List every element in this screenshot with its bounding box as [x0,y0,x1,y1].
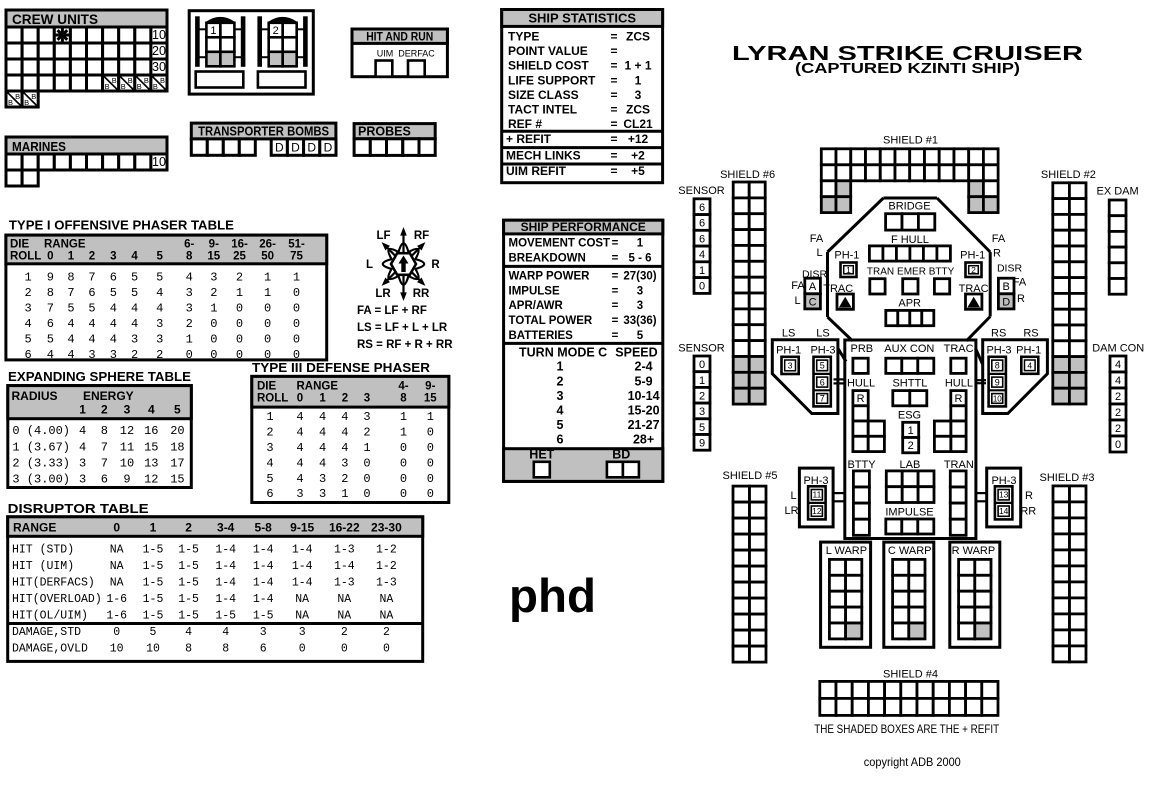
svg-text:NA: NA [379,593,393,606]
svg-text:18: 18 [170,440,184,454]
svg-text:2: 2 [341,472,348,486]
svg-text:1: 1 [319,392,326,404]
svg-text:FA: FA [1013,277,1027,289]
svg-text:1: 1 [637,238,644,250]
svg-text:3: 3 [635,88,642,102]
svg-text:27(30): 27(30) [623,271,656,283]
svg-text:copyright ADB 2000: copyright ADB 2000 [864,755,961,769]
svg-text:2: 2 [101,403,108,417]
svg-text:15: 15 [170,473,184,487]
svg-text:ESG: ESG [898,409,921,421]
svg-text:3: 3 [699,406,705,418]
svg-text:4: 4 [131,317,138,331]
svg-text:=: = [610,164,617,178]
svg-text:4: 4 [266,456,273,470]
svg-text:LAB: LAB [900,459,921,471]
svg-text:4: 4 [1115,359,1121,371]
svg-text:3: 3 [156,317,163,331]
svg-text:5: 5 [88,301,95,315]
svg-text:6: 6 [260,642,267,655]
svg-text:4: 4 [296,472,303,486]
svg-text:3: 3 [186,301,193,315]
svg-text:4: 4 [319,426,326,440]
svg-text:3: 3 [110,348,117,362]
svg-text:HULL: HULL [847,378,875,390]
svg-text:3: 3 [341,456,348,470]
svg-text:0: 0 [383,642,390,655]
svg-text:RANGE: RANGE [44,239,86,251]
svg-text:4: 4 [296,441,303,455]
svg-text:1: 1 [908,425,914,437]
svg-text:12: 12 [120,424,134,438]
svg-text:3: 3 [363,410,370,424]
svg-text:1: 1 [79,403,86,417]
svg-text:7: 7 [47,301,54,315]
svg-text:4: 4 [1115,375,1121,387]
svg-text:2: 2 [131,348,138,362]
svg-text:3: 3 [637,285,643,297]
svg-text:RANGE: RANGE [13,521,56,535]
svg-text:L WARP: L WARP [826,545,867,557]
svg-text:NA: NA [110,577,124,590]
svg-text:TURN MODE C: TURN MODE C [519,346,607,360]
svg-text:3: 3 [131,333,138,347]
svg-text:HULL: HULL [945,378,973,390]
svg-text:9-: 9- [425,380,435,392]
svg-text:HIT(OVERLOAD): HIT(OVERLOAD) [12,593,102,606]
svg-text:1-5: 1-5 [178,560,199,573]
svg-text:6: 6 [266,487,273,501]
svg-text:B: B [137,82,142,91]
svg-text:0: 0 [264,348,271,362]
svg-text:4: 4 [110,333,117,347]
svg-text:20: 20 [170,424,184,438]
svg-text:20: 20 [152,44,166,58]
svg-text:L: L [816,247,822,259]
svg-text:5: 5 [266,472,273,486]
svg-text:0: 0 [400,456,407,470]
svg-text:4: 4 [319,410,326,424]
svg-text:SHIELD #1: SHIELD #1 [883,135,938,147]
svg-text:10: 10 [152,155,166,169]
svg-text:7: 7 [820,393,825,403]
svg-text:2 (3.33): 2 (3.33) [12,456,70,470]
svg-text:7: 7 [101,456,108,470]
svg-text:(CAPTURED KZINTI SHIP): (CAPTURED KZINTI SHIP) [795,60,1020,77]
svg-text:25: 25 [233,251,246,263]
svg-text:1-4: 1-4 [215,560,236,573]
svg-text:0: 0 [236,317,243,331]
svg-text:D: D [275,140,284,154]
svg-text:ZCS: ZCS [626,103,650,117]
svg-text:4: 4 [110,317,117,331]
svg-text:3: 3 [296,487,303,501]
svg-text:1: 1 [846,265,851,275]
svg-text:TYPE I OFFENSIVE PHASER TABLE: TYPE I OFFENSIVE PHASER TABLE [9,219,234,233]
svg-text:PH-1: PH-1 [776,344,801,356]
svg-text:4: 4 [341,426,348,440]
svg-text:NA: NA [337,593,351,606]
svg-text:8: 8 [222,642,229,655]
svg-text:NA: NA [295,593,309,606]
svg-text:TYPE: TYPE [508,30,539,44]
svg-text:4: 4 [110,301,117,315]
svg-text:10: 10 [146,642,160,655]
svg-text:2: 2 [186,317,193,331]
svg-text:D: D [324,140,333,154]
svg-text:8: 8 [995,361,1000,371]
svg-text:RS: RS [991,327,1006,339]
svg-text:SHIP STATISTICS: SHIP STATISTICS [528,11,636,26]
svg-text:1-6: 1-6 [106,610,127,623]
svg-text:7: 7 [88,270,95,284]
svg-text:16: 16 [144,424,158,438]
svg-text:DISRUPTOR TABLE: DISRUPTOR TABLE [8,502,149,516]
svg-text:6: 6 [699,202,705,214]
svg-text:30: 30 [152,60,166,74]
svg-text:2: 2 [156,348,163,362]
svg-text:1-4: 1-4 [253,560,274,573]
svg-text:6: 6 [47,317,54,331]
svg-text:6: 6 [699,233,705,245]
svg-text:0: 0 [264,317,271,331]
svg-text:33(36): 33(36) [623,315,656,327]
svg-text:L: L [366,259,373,271]
svg-text:NA: NA [337,610,351,623]
svg-text:PH-1: PH-1 [960,250,985,262]
svg-text:8: 8 [67,270,74,284]
svg-text:3: 3 [79,473,86,487]
svg-text:51-: 51- [288,239,305,251]
svg-text:3: 3 [266,441,273,455]
svg-text:1-4: 1-4 [215,544,236,557]
svg-text:L: L [794,295,800,307]
svg-text:1-5: 1-5 [143,544,164,557]
svg-text:8: 8 [47,286,54,300]
svg-text:15: 15 [144,440,158,454]
svg-text:UIM REFIT: UIM REFIT [506,164,567,178]
svg-text:10: 10 [152,28,166,42]
svg-text:B: B [31,92,36,101]
svg-text:HIT (UIM): HIT (UIM) [12,560,74,573]
svg-text:0: 0 [236,333,243,347]
svg-text:9: 9 [995,377,1000,387]
svg-text:BTTY: BTTY [929,267,955,278]
svg-text:+2: +2 [631,149,645,163]
svg-text:2: 2 [557,374,564,388]
svg-text:LIFE SUPPORT: LIFE SUPPORT [508,73,596,87]
svg-text:1-5: 1-5 [178,544,199,557]
svg-text:SHIELD COST: SHIELD COST [508,59,589,73]
svg-text:5 - 6: 5 - 6 [628,253,651,265]
svg-text:=: = [612,315,619,327]
svg-text:TRANSPORTER BOMBS: TRANSPORTER BOMBS [198,125,329,139]
svg-text:4: 4 [319,441,326,455]
svg-text:CL21: CL21 [623,117,653,131]
svg-text:1: 1 [293,270,300,284]
svg-text:3: 3 [186,286,193,300]
svg-text:1: 1 [699,265,705,277]
svg-text:3: 3 [637,300,643,312]
svg-text:26-: 26- [259,239,276,251]
svg-text:0: 0 [236,348,243,362]
svg-text:0: 0 [363,456,370,470]
svg-text:4: 4 [88,333,95,347]
svg-text:0: 0 [427,472,434,486]
svg-text:5: 5 [150,626,157,639]
svg-text:1: 1 [264,270,271,284]
svg-text:C WARP: C WARP [888,545,932,557]
svg-text:HIT(OL/UIM): HIT(OL/UIM) [12,610,88,623]
svg-text:4: 4 [67,333,74,347]
svg-text:UIM: UIM [377,49,394,59]
svg-text:0 (4.00): 0 (4.00) [12,424,70,438]
svg-text:FA: FA [791,280,805,292]
svg-text:1-4: 1-4 [292,560,313,573]
svg-text:D: D [307,140,316,154]
svg-text:1-5: 1-5 [215,610,236,623]
svg-text:9: 9 [47,270,54,284]
svg-text:17: 17 [170,456,184,470]
svg-text:1-3: 1-3 [334,577,355,590]
svg-text:4: 4 [186,270,193,284]
svg-text:TYPE III DEFENSE PHASER: TYPE III DEFENSE PHASER [252,361,430,375]
svg-text:4: 4 [222,626,229,639]
svg-text:MECH LINKS: MECH LINKS [506,149,581,163]
svg-text:DIE: DIE [257,380,277,392]
svg-text:2: 2 [341,626,348,639]
svg-text:=: = [610,30,617,44]
svg-text:TOTAL POWER: TOTAL POWER [509,315,593,327]
svg-text:R: R [993,248,1001,260]
svg-text:4: 4 [341,441,348,455]
svg-text:5: 5 [47,333,54,347]
svg-text:R: R [857,393,865,405]
svg-text:16-: 16- [231,239,248,251]
svg-text:A: A [809,281,817,293]
svg-text:1-4: 1-4 [215,593,236,606]
svg-text:0: 0 [427,441,434,455]
svg-text:RR: RR [1020,506,1036,518]
svg-text:0: 0 [293,348,300,362]
svg-text:3: 3 [557,389,564,403]
svg-text:1-2: 1-2 [376,560,397,573]
svg-text:4: 4 [79,424,86,438]
svg-text:FA: FA [810,233,824,245]
svg-text:0: 0 [400,472,407,486]
svg-text:15-20: 15-20 [628,404,660,418]
svg-text:IMPULSE: IMPULSE [509,285,560,297]
svg-text:THE SHADED BOXES ARE THE + REF: THE SHADED BOXES ARE THE + REFIT [814,722,1000,736]
svg-text:2: 2 [1115,423,1121,435]
svg-text:5-8: 5-8 [255,521,273,535]
svg-text:5: 5 [820,361,825,371]
svg-text:0: 0 [47,251,53,263]
svg-text:IMPULSE: IMPULSE [885,507,933,519]
svg-text:4: 4 [47,348,54,362]
svg-text:3: 3 [299,626,306,639]
svg-text:POINT VALUE: POINT VALUE [508,44,588,58]
svg-text:3 (3.00): 3 (3.00) [12,473,70,487]
svg-text:RF: RF [414,230,429,242]
svg-text:6: 6 [699,218,705,230]
svg-text:=: = [612,238,619,250]
svg-text:21-27: 21-27 [628,418,660,432]
svg-text:0: 0 [363,487,370,501]
svg-text:LS = LF + L + LR: LS = LF + L + LR [357,322,448,334]
svg-text:4: 4 [341,410,348,424]
svg-text:10-14: 10-14 [628,389,660,403]
svg-text:=: = [612,253,619,265]
svg-text:3: 3 [110,251,116,263]
svg-text:4: 4 [699,249,705,261]
svg-text:DAMAGE,STD: DAMAGE,STD [12,626,81,639]
svg-text:ROLL: ROLL [10,251,41,263]
svg-text:=: = [612,285,619,297]
svg-text:MARINES: MARINES [12,139,66,154]
svg-text:0: 0 [400,441,407,455]
svg-text:3: 3 [156,333,163,347]
svg-text:LF: LF [376,230,390,242]
svg-text:0: 0 [427,487,434,501]
svg-text:4: 4 [296,410,303,424]
svg-text:BRIDGE: BRIDGE [888,201,930,213]
svg-text:R: R [431,259,440,271]
svg-text:0: 0 [264,333,271,347]
svg-text:=: = [610,132,617,146]
svg-text:1-4: 1-4 [334,560,355,573]
svg-text:1-5: 1-5 [178,610,199,623]
svg-text:0: 0 [210,333,217,347]
svg-text:2: 2 [266,426,273,440]
svg-text:50: 50 [261,251,274,263]
svg-text:3-4: 3-4 [217,521,235,535]
svg-text:9: 9 [699,438,705,450]
svg-text:SPEED: SPEED [615,346,657,360]
svg-text:12: 12 [144,473,158,487]
svg-text:0: 0 [210,317,217,331]
svg-text:PH-3: PH-3 [810,344,835,356]
svg-text:1: 1 [236,286,243,300]
svg-text:5: 5 [67,301,74,315]
svg-text:28+: 28+ [633,433,654,447]
svg-text:5: 5 [637,330,644,342]
svg-text:5: 5 [557,418,564,432]
svg-text:B: B [160,76,165,85]
svg-text:0: 0 [341,642,348,655]
svg-text:BTTY: BTTY [847,459,876,471]
svg-text:C: C [809,296,817,308]
svg-text:NA: NA [110,560,124,573]
svg-text:1: 1 [68,251,75,263]
svg-text:NA: NA [295,610,309,623]
svg-text:5: 5 [156,270,163,284]
svg-text:0: 0 [400,487,407,501]
svg-text:2: 2 [236,270,243,284]
svg-text:2: 2 [363,426,370,440]
svg-text:1-4: 1-4 [253,577,274,590]
svg-text:0: 0 [699,281,705,293]
svg-text:5: 5 [24,333,31,347]
svg-text:5: 5 [699,422,705,434]
svg-text:=: = [610,117,617,131]
svg-text:RR: RR [413,288,430,300]
svg-text:4: 4 [131,251,138,263]
svg-text:4: 4 [88,317,95,331]
svg-text:phd: phd [509,569,596,622]
svg-text:3: 3 [260,626,267,639]
svg-text:5: 5 [131,286,138,300]
svg-text:13: 13 [144,456,158,470]
svg-text:LS: LS [782,327,795,339]
svg-text:1-2: 1-2 [376,544,397,557]
svg-text:1: 1 [210,25,216,37]
svg-text:0: 0 [186,348,193,362]
svg-text:TRAN: TRAN [944,459,974,471]
svg-text:R: R [1017,293,1025,305]
svg-text:HIT(DERFACS): HIT(DERFACS) [12,577,95,590]
svg-text:1: 1 [24,270,31,284]
svg-text:APR: APR [898,297,921,309]
svg-text:4: 4 [1027,360,1032,370]
svg-text:1: 1 [400,410,407,424]
svg-text:3: 3 [319,487,326,501]
svg-text:BREAKDOWN: BREAKDOWN [509,253,586,265]
svg-text:1-4: 1-4 [292,544,313,557]
svg-text:7: 7 [101,440,108,454]
svg-text:12: 12 [812,506,822,516]
svg-text:0: 0 [264,301,271,315]
svg-text:EX DAM: EX DAM [1097,186,1139,198]
svg-text:5: 5 [131,270,138,284]
svg-text:=: = [610,59,617,73]
svg-text:4: 4 [185,626,192,639]
svg-text:B: B [24,98,29,107]
svg-text:B: B [105,82,110,91]
svg-text:SHIELD #3: SHIELD #3 [1039,472,1094,484]
svg-text:8: 8 [400,392,407,404]
svg-text:1: 1 [635,73,642,87]
svg-text:4: 4 [156,301,163,315]
svg-text:B: B [121,82,126,91]
svg-text:D: D [291,140,300,154]
svg-text:10: 10 [120,456,134,470]
svg-text:=: = [610,44,617,58]
svg-text:1: 1 [699,375,705,387]
svg-text:3: 3 [788,361,793,371]
svg-text:B: B [112,76,117,85]
svg-text:1-6: 1-6 [106,593,127,606]
svg-text:BD: BD [612,448,630,462]
svg-text:75: 75 [290,251,303,263]
svg-text:=: = [610,73,617,87]
svg-text:5: 5 [110,286,117,300]
svg-text:R: R [1025,490,1033,502]
svg-text:0: 0 [427,426,434,440]
svg-text:1: 1 [557,360,564,374]
svg-text:PROBES: PROBES [358,125,411,139]
svg-text:4: 4 [67,348,74,362]
svg-text:1-5: 1-5 [178,593,199,606]
svg-text:6: 6 [557,433,564,447]
svg-text:B: B [8,98,13,107]
svg-text:0: 0 [113,626,120,639]
svg-text:13: 13 [999,490,1009,500]
svg-text:0: 0 [293,301,300,315]
svg-text:6: 6 [110,270,117,284]
svg-text:1-5: 1-5 [143,610,164,623]
svg-text:=: = [612,330,619,342]
